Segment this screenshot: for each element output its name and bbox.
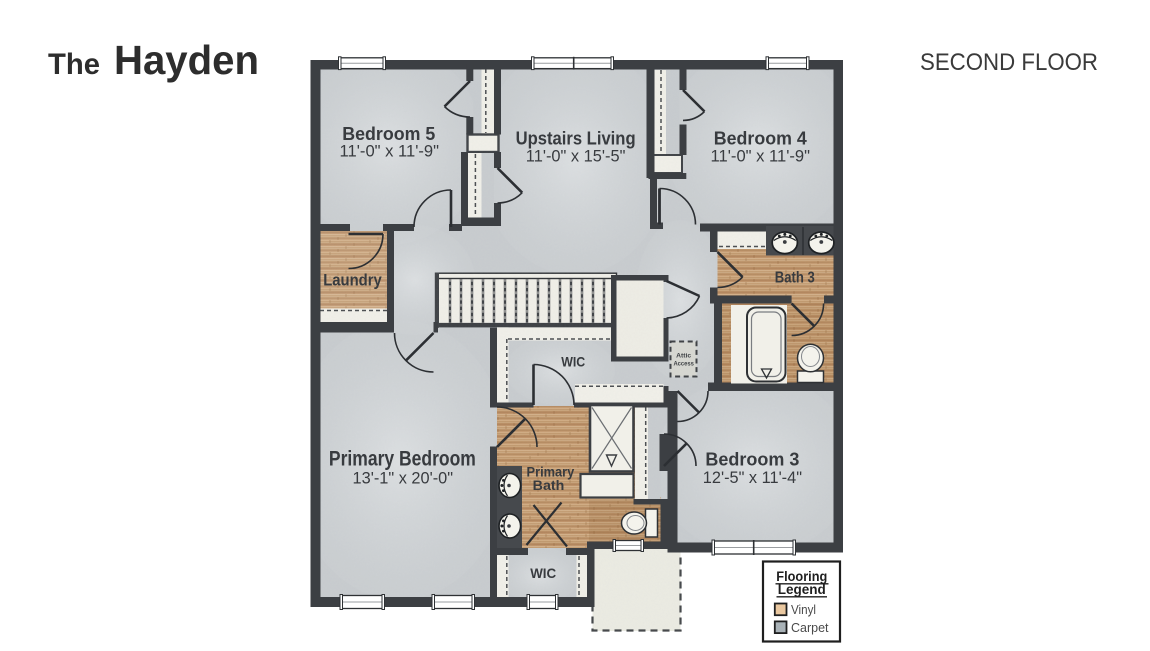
svg-text:Carpet: Carpet (791, 620, 829, 635)
svg-text:Bedroom 3: Bedroom 3 (705, 448, 799, 469)
svg-text:Legend: Legend (778, 581, 826, 597)
svg-text:Bath: Bath (533, 478, 565, 493)
svg-text:11'-0" x 11'-9": 11'-0" x 11'-9" (340, 142, 440, 161)
svg-text:Laundry: Laundry (323, 272, 382, 290)
svg-text:11'-0" x 15'-5": 11'-0" x 15'-5" (526, 147, 626, 166)
svg-text:WIC: WIC (561, 354, 585, 370)
svg-text:The: The (48, 48, 100, 81)
svg-text:Bath 3: Bath 3 (775, 269, 815, 286)
svg-text:12'-5" x 11'-4": 12'-5" x 11'-4" (703, 468, 802, 487)
svg-text:Upstairs Living: Upstairs Living (516, 128, 636, 149)
svg-text:SECOND FLOOR: SECOND FLOOR (920, 49, 1098, 76)
svg-text:11'-0" x 11'-9": 11'-0" x 11'-9" (711, 147, 811, 166)
svg-text:Primary Bedroom: Primary Bedroom (329, 448, 476, 471)
svg-text:Bedroom 4: Bedroom 4 (714, 128, 808, 149)
svg-text:WIC: WIC (530, 565, 556, 581)
svg-text:13'-1" x 20'-0": 13'-1" x 20'-0" (353, 469, 454, 488)
svg-text:Vinyl: Vinyl (791, 602, 816, 617)
svg-text:Hayden: Hayden (114, 37, 259, 83)
